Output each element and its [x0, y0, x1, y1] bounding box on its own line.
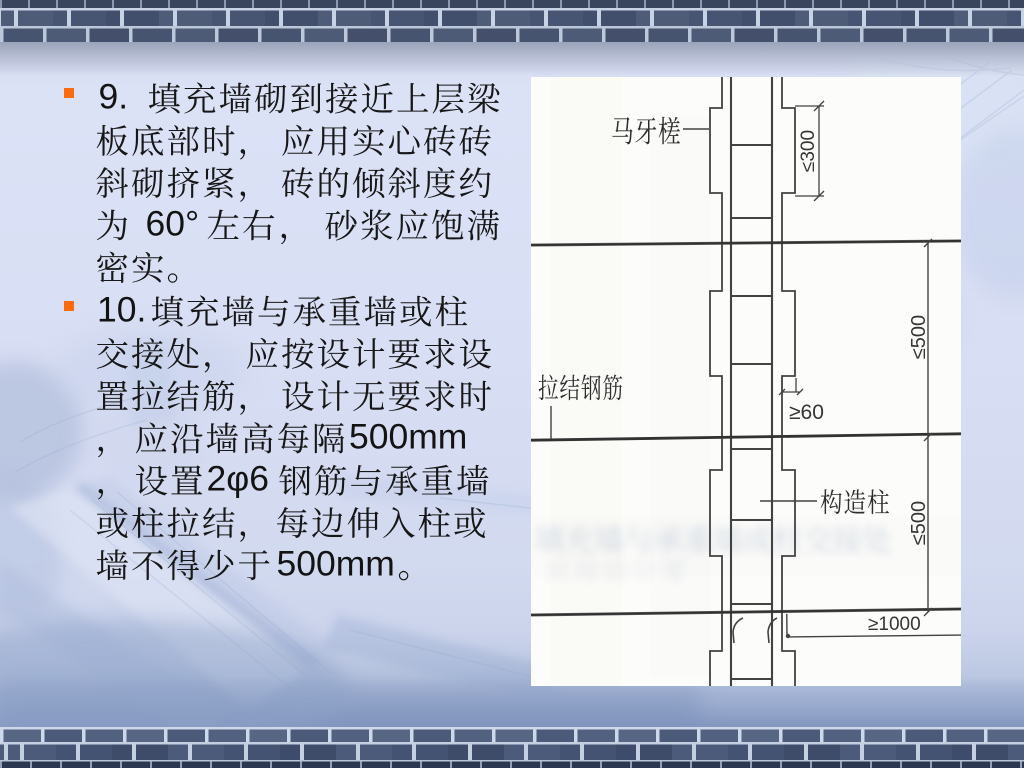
svg-text:9.: 9. — [99, 77, 129, 117]
svg-text:60°: 60° — [146, 203, 200, 243]
svg-text:500mm: 500mm — [349, 416, 467, 456]
svg-text:500mm: 500mm — [277, 543, 395, 583]
svg-text:10.: 10. — [97, 290, 146, 330]
svg-text:2φ6: 2φ6 — [207, 459, 270, 499]
